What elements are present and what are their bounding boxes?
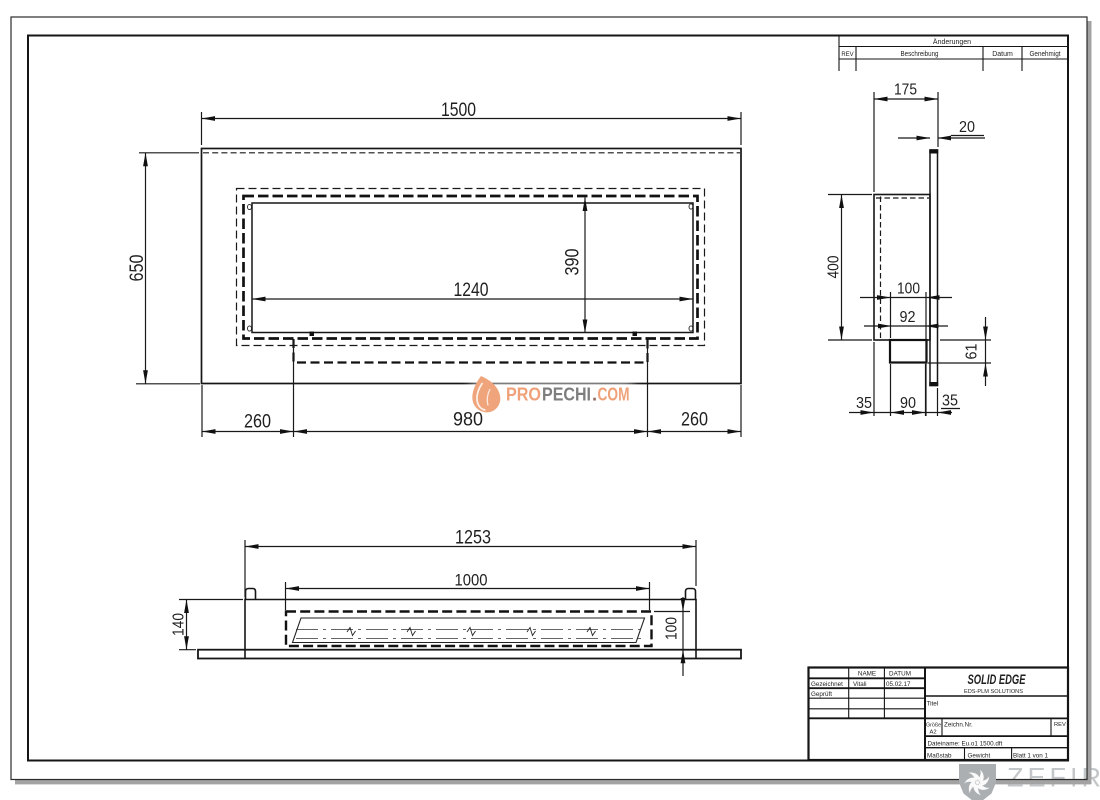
- svg-text:400: 400: [826, 255, 843, 278]
- svg-text:Gewicht: Gewicht: [968, 753, 991, 760]
- svg-text:35: 35: [856, 395, 872, 412]
- svg-text:DATUM: DATUM: [889, 671, 911, 678]
- svg-text:390: 390: [563, 249, 584, 276]
- svg-text:Blatt 1 von 1: Blatt 1 von 1: [1013, 753, 1049, 760]
- svg-text:PECHI: PECHI: [542, 384, 591, 405]
- svg-text:980: 980: [453, 410, 483, 431]
- svg-text:REV: REV: [1054, 722, 1066, 728]
- svg-text:Änderungen: Änderungen: [933, 38, 971, 46]
- svg-text:Genehmigt: Genehmigt: [1030, 51, 1061, 58]
- svg-text:Datum: Datum: [992, 51, 1013, 58]
- svg-text:100: 100: [897, 281, 920, 298]
- svg-text:260: 260: [681, 410, 708, 431]
- svg-text:100: 100: [664, 617, 681, 640]
- svg-text:.: .: [592, 384, 597, 405]
- svg-text:Titel: Titel: [927, 701, 939, 708]
- svg-text:Beschreibung: Beschreibung: [901, 51, 939, 58]
- svg-text:61: 61: [964, 344, 981, 360]
- svg-text:PRO: PRO: [506, 384, 541, 405]
- svg-text:20: 20: [959, 119, 975, 136]
- svg-text:EDS-PLM SOLUTIONS: EDS-PLM SOLUTIONS: [964, 689, 1023, 695]
- svg-text:REV: REV: [841, 52, 853, 58]
- svg-text:Größe: Größe: [926, 723, 941, 729]
- svg-text:NAME: NAME: [858, 671, 876, 678]
- svg-text:35: 35: [942, 393, 958, 410]
- svg-text:Gezeichnet: Gezeichnet: [811, 681, 843, 688]
- svg-text:Vitali: Vitali: [853, 681, 867, 688]
- svg-text:92: 92: [900, 309, 916, 326]
- svg-text:Maßstab: Maßstab: [927, 753, 952, 760]
- svg-text:1500: 1500: [441, 100, 476, 121]
- svg-text:Dateiname: Eu.o1 1500.dft: Dateiname: Eu.o1 1500.dft: [928, 740, 1003, 747]
- svg-text:1240: 1240: [454, 280, 489, 301]
- svg-text:1253: 1253: [455, 528, 491, 549]
- svg-text:90: 90: [900, 395, 916, 412]
- svg-text:A2: A2: [930, 730, 937, 736]
- svg-text:Geprüft: Geprüft: [811, 691, 832, 698]
- svg-text:COM: COM: [598, 384, 630, 405]
- svg-text:05.02.17: 05.02.17: [886, 681, 911, 688]
- svg-text:Zeichn.Nr.: Zeichn.Nr.: [944, 722, 973, 729]
- svg-text:ZEFIRE: ZEFIRE: [1007, 763, 1100, 793]
- svg-text:260: 260: [244, 412, 271, 433]
- svg-text:SOLID EDGE: SOLID EDGE: [968, 672, 1027, 687]
- svg-text:175: 175: [894, 82, 917, 99]
- svg-text:1000: 1000: [455, 571, 488, 590]
- svg-text:650: 650: [127, 255, 148, 282]
- svg-text:140: 140: [171, 613, 188, 636]
